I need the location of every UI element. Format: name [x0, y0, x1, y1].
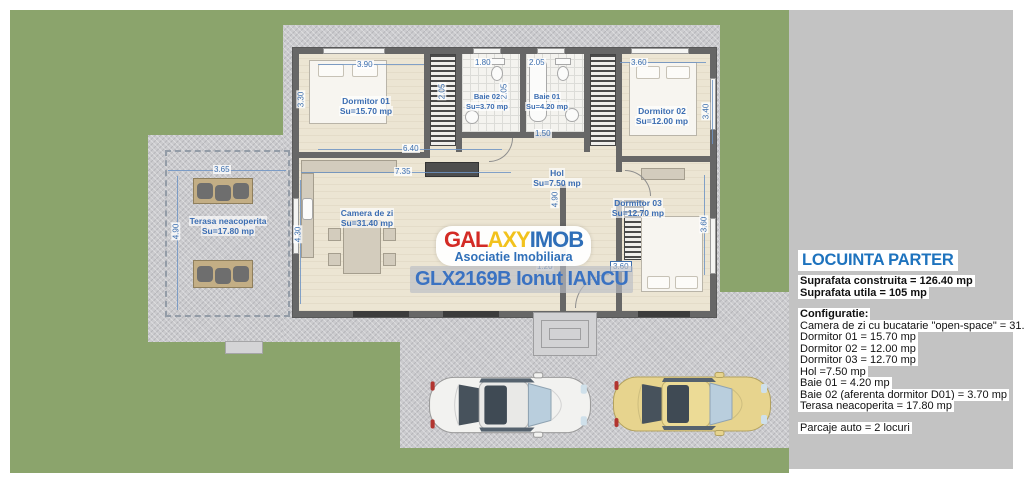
info-panel: LOCUINTA PARTER Suprafata construita = 1… [789, 10, 1013, 469]
panel-config-line: Dormitor 01 = 15.70 mp [798, 332, 1005, 344]
dim-label: 2.05 [437, 83, 446, 101]
room-label-baie-01: Baie 01Su=4.20 mp [517, 92, 577, 112]
dimension-line [177, 176, 178, 310]
dim-label: 4.30 [293, 226, 302, 244]
dim-label: 1.80 [474, 58, 492, 67]
floor-plan-listing-image: 3.90 3.30 1.80 2.05 2.05 2.05 3.60 3.40 … [0, 0, 1024, 486]
terrace-sofa-top [193, 178, 253, 204]
panel-config-line: Baie 01 = 4.20 mp [798, 378, 1005, 390]
dim-label: 1.50 [534, 129, 552, 138]
room-label-hol: HolSu=7.50 mp [532, 168, 582, 188]
chair [328, 228, 341, 241]
bathtub-baie-01 [529, 58, 547, 122]
dresser-dormitor-03 [641, 168, 685, 180]
room-label-dormitor-03: Dormitor 03Su=12.70 mp [598, 198, 678, 218]
chair [383, 253, 396, 266]
window [631, 48, 689, 54]
kitchen-sink [302, 198, 313, 220]
dim-label: 4.90 [171, 223, 180, 241]
window-glazed [638, 311, 690, 317]
entrance-steps [533, 312, 597, 356]
room-label-baie-02: Baie 02Su=3.70 mp [457, 92, 517, 112]
wall [456, 132, 590, 138]
listing-code-watermark: GLX2169B Ionut IANCU [410, 266, 633, 293]
tv-unit [425, 162, 479, 177]
toilet-bowl-baie-01 [557, 66, 569, 81]
panel-line-built: Suprafata construita = 126.40 mp [798, 276, 1005, 288]
room-label-dormitor-01: Dormitor 01Su=15.70 mp [324, 96, 408, 116]
window [710, 218, 716, 274]
panel-line-usable: Suprafata utila = 105 mp [798, 288, 1005, 300]
dim-label: 3.30 [296, 91, 305, 109]
toilet-baie-01 [555, 58, 571, 65]
room-label-camera-de-zi: Camera de ziSu=31.40 mp [325, 208, 409, 228]
dim-label: 2.05 [528, 58, 546, 67]
dim-label: 4.90 [550, 191, 559, 209]
window [473, 48, 501, 54]
wall [616, 162, 622, 172]
window [710, 78, 716, 130]
dimension-line [712, 80, 713, 144]
toilet-bowl-baie-02 [491, 66, 503, 81]
chair [328, 253, 341, 266]
dim-label: 3.60 [630, 58, 648, 67]
panel-config-heading: Configuratie: [798, 309, 1005, 321]
dining-table [343, 220, 381, 274]
panel-line-parking: Parcaje auto = 2 locuri [798, 423, 1005, 435]
terrace-sofa-bottom [193, 260, 253, 288]
page-title: LOCUINTA PARTER [798, 250, 958, 271]
page-title-wrap: LOCUINTA PARTER [798, 250, 1005, 271]
panel-config-line: Dormitor 03 = 12.70 mp [798, 355, 1005, 367]
panel-config-line: Terasa neacoperita = 17.80 mp [798, 401, 1005, 413]
dim-label: 6.40 [402, 144, 420, 153]
window-glazed [353, 311, 409, 317]
chair [383, 228, 396, 241]
room-label-dormitor-02: Dormitor 02Su=12.00 mp [620, 106, 704, 126]
car-top-view-yellow [612, 370, 772, 438]
window [323, 48, 385, 54]
agency-subtitle: Asociatie Imobiliara [444, 251, 583, 264]
sink-baie-02 [465, 110, 479, 124]
wall [616, 156, 710, 162]
dim-label: 7.35 [394, 167, 412, 176]
dim-label: 3.65 [213, 165, 231, 174]
terrace-step-pad [225, 341, 263, 354]
window [537, 48, 565, 54]
car-top-view-white [428, 372, 592, 438]
window-glazed [443, 311, 499, 317]
agency-logo: GALAXYIMOB Asociatie Imobiliara [436, 226, 591, 266]
room-label-terasa: Terasa neacoperitaSu=17.80 mp [184, 216, 272, 236]
dim-label: 3.90 [356, 60, 374, 69]
bed-dormitor-03 [641, 216, 703, 292]
agency-logo-text: GALAXYIMOB [444, 229, 583, 251]
wardrobe-dormitor-02 [590, 54, 616, 146]
dim-label: 3.60 [699, 216, 708, 234]
